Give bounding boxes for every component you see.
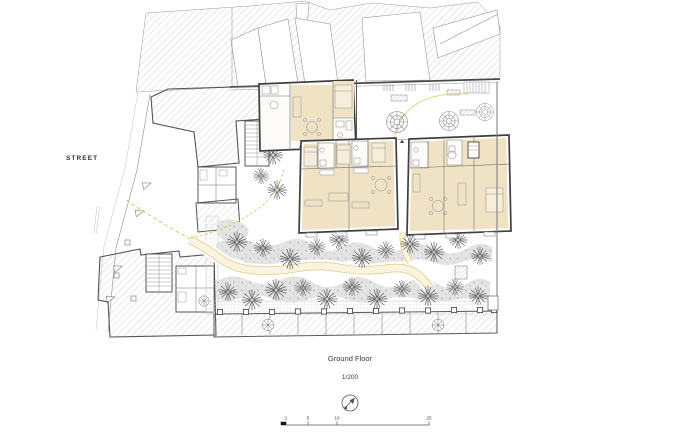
garden-tree-icon <box>253 168 269 184</box>
stair-block <box>146 254 172 292</box>
neighbor-buildings-north <box>136 1 500 92</box>
courtyard-stairs <box>464 82 489 93</box>
apartment-block-west <box>299 138 398 237</box>
scale-tick-label: 25 <box>426 416 432 421</box>
north-arrow <box>342 395 358 411</box>
street-name-micro-text <box>94 206 100 234</box>
scale-bar: 1 5 10 25 <box>281 416 432 426</box>
scale-tick-label: 10 <box>334 416 340 421</box>
court-tree-icon <box>476 103 493 120</box>
utility-line-street <box>126 200 190 239</box>
court-tree-icon <box>387 112 408 133</box>
court-tree-icon <box>440 112 459 131</box>
scale-tick-label: 5 <box>307 416 310 421</box>
site-plan-svg: STREET Ground Floor 1/200 1 5 10 25 <box>0 0 700 438</box>
drawing-scale: 1/200 <box>342 374 359 381</box>
existing-building-lower-west <box>98 249 216 337</box>
existing-building-upper-west <box>151 86 269 232</box>
drawing-title: Ground Floor <box>328 354 373 363</box>
boundary-notch <box>488 296 498 310</box>
scale-bar-solid-segment <box>281 422 286 425</box>
scale-tick-label: 1 <box>285 416 288 421</box>
apartment-block-east <box>407 135 511 239</box>
garden-planter-box <box>455 266 467 279</box>
west-rooms <box>198 167 236 203</box>
architectural-drawing-sheet: STREET Ground Floor 1/200 1 5 10 25 <box>0 0 700 438</box>
spiral-stair-icon <box>432 319 444 331</box>
street-label: STREET <box>66 155 98 162</box>
scale-bar-ticks <box>281 422 429 426</box>
garden-tree-icon <box>268 180 287 199</box>
spiral-stair-icon <box>262 319 274 331</box>
